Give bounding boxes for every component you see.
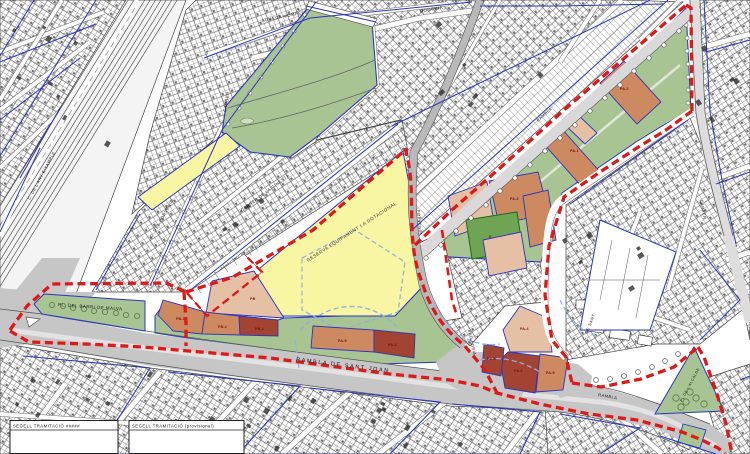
svg-text:PA-3: PA-3	[510, 197, 519, 201]
svg-text:PB: PB	[250, 297, 256, 301]
svg-text:PB-3: PB-3	[255, 327, 264, 331]
svg-text:E: E	[489, 235, 492, 239]
svg-text:PA-5: PA-5	[546, 371, 555, 375]
svg-text:PA-4: PA-4	[520, 327, 529, 331]
svg-text:PB-1: PB-1	[176, 317, 185, 321]
svg-text:PA-6: PA-6	[514, 369, 523, 373]
svg-text:PA-1: PA-1	[487, 357, 496, 361]
svg-text:SEGELL TRAMITACIÓ (provisional: SEGELL TRAMITACIÓ (provisional)	[132, 424, 214, 429]
svg-text:PA-6: PA-6	[388, 343, 397, 347]
svg-text:SEGELL TRAMITACIÓ #####: SEGELL TRAMITACIÓ #####	[13, 424, 80, 429]
svg-text:PA-1: PA-1	[570, 149, 579, 153]
svg-text:PA-5: PA-5	[338, 339, 347, 343]
svg-text:PB-2: PB-2	[218, 325, 227, 329]
svg-text:PA-2: PA-2	[620, 87, 629, 91]
